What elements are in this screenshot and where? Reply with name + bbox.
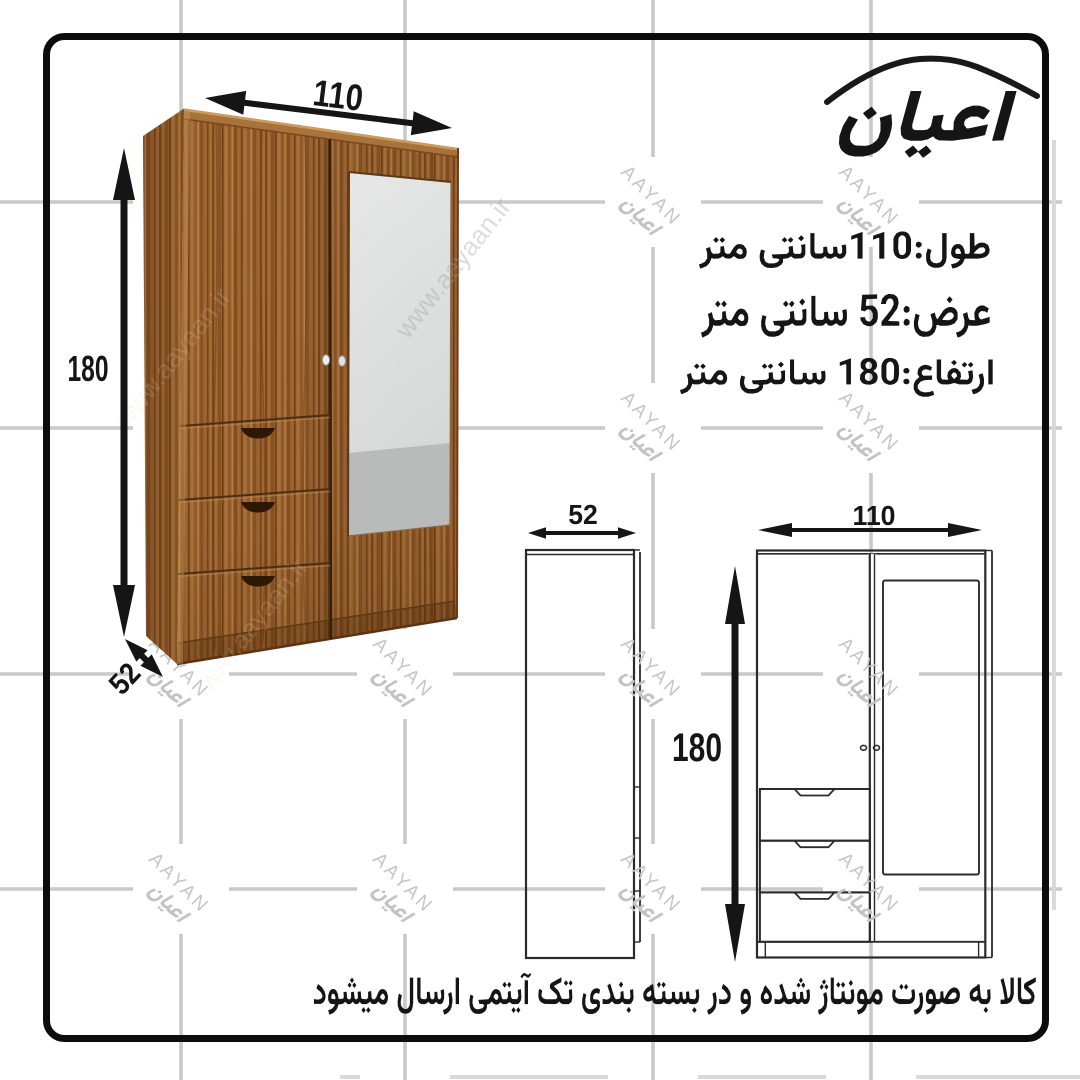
svg-text:180: 180 (68, 348, 109, 389)
svg-text:110: 110 (311, 72, 366, 119)
svg-text:110: 110 (853, 500, 896, 531)
svg-text:180: 180 (672, 726, 722, 770)
svg-text:52: 52 (568, 499, 598, 530)
